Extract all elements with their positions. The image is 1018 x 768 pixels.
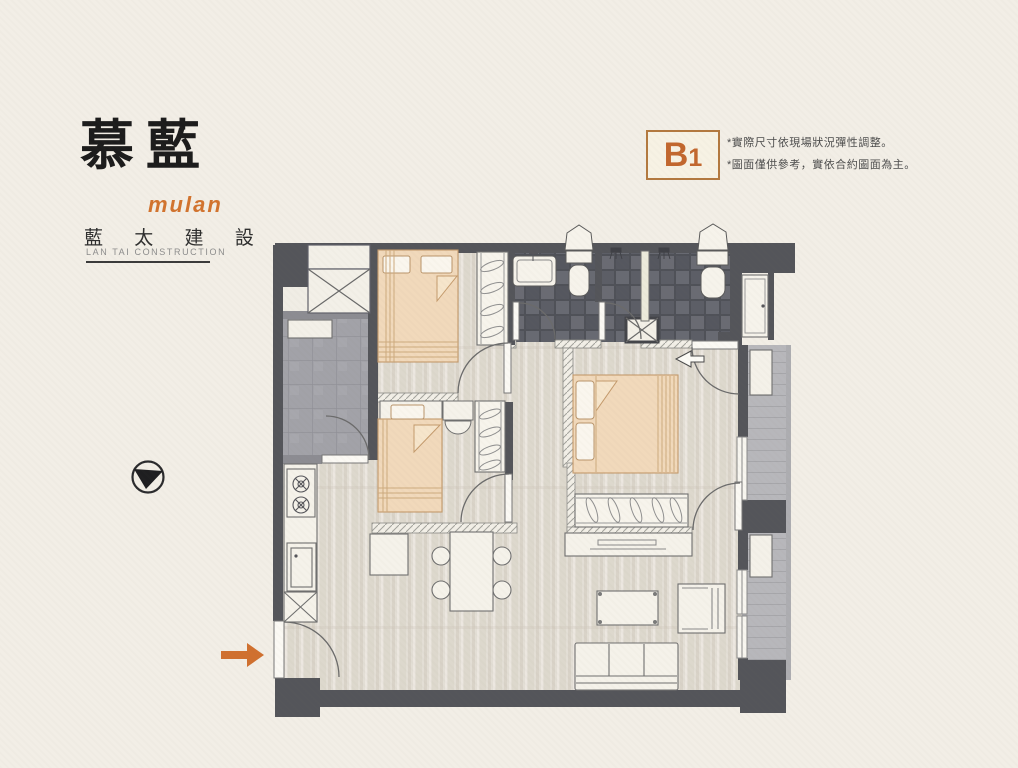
master-bed (573, 375, 678, 473)
utility-room (288, 320, 332, 338)
wardrobe-2 (475, 401, 505, 472)
dining-chair (493, 581, 511, 599)
floorplan-poster: { "brand": { "logo_main": "慕藍", "logo_su… (0, 0, 1018, 768)
shelf (443, 401, 473, 420)
sofa (575, 643, 678, 690)
kitchen (284, 464, 317, 622)
bed-2 (378, 405, 442, 512)
utility-shelf (288, 320, 332, 338)
toilet-1 (565, 225, 593, 296)
side-chair (678, 584, 725, 633)
dining-chair (432, 581, 450, 599)
island-cabinet (370, 534, 408, 575)
ac-unit-2 (750, 535, 772, 577)
dining-chair (432, 547, 450, 565)
coffee-table (597, 591, 658, 625)
dining-chair (493, 547, 511, 565)
glass-partition (641, 251, 649, 321)
toilet-2 (697, 224, 728, 298)
bed-1 (378, 250, 458, 362)
entry-direction-arrow (221, 643, 264, 667)
floorplan-drawing (0, 0, 1018, 768)
master-wardrobe (575, 494, 688, 527)
media-cabinet (565, 533, 692, 556)
bathroom-1 (513, 225, 593, 296)
wardrobe-1 (477, 252, 508, 345)
storage-cabinet (742, 275, 768, 337)
ac-unit-1 (750, 350, 772, 395)
bedroom-1 (378, 250, 508, 362)
dining-table (450, 532, 493, 611)
north-compass-icon (133, 462, 164, 493)
